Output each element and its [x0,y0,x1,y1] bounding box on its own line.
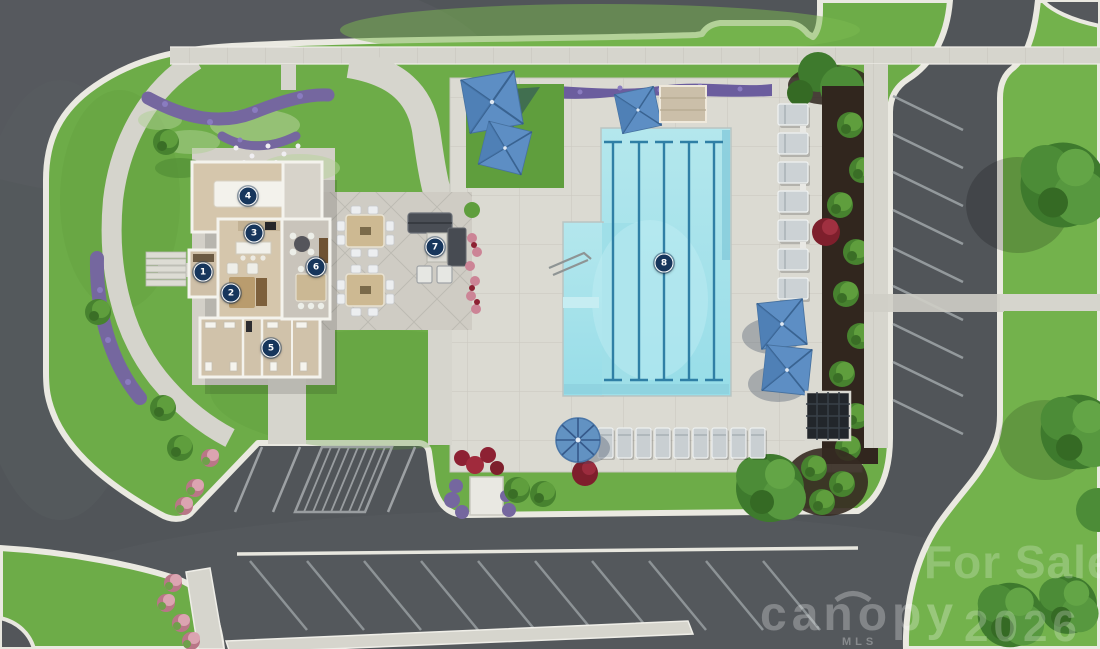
marker-5: 5 [262,339,281,358]
marker-6: 6 [307,258,326,277]
marker-1: 1 [194,263,213,282]
markers-layer: 12345678 [0,0,1100,649]
marker-2: 2 [222,284,241,303]
marker-7: 7 [426,238,445,257]
marker-4: 4 [239,187,258,206]
marker-3: 3 [245,224,264,243]
site-plan-rendering: For Sale canopy MLS 2026 12345678 [0,0,1100,649]
marker-8: 8 [655,254,674,273]
